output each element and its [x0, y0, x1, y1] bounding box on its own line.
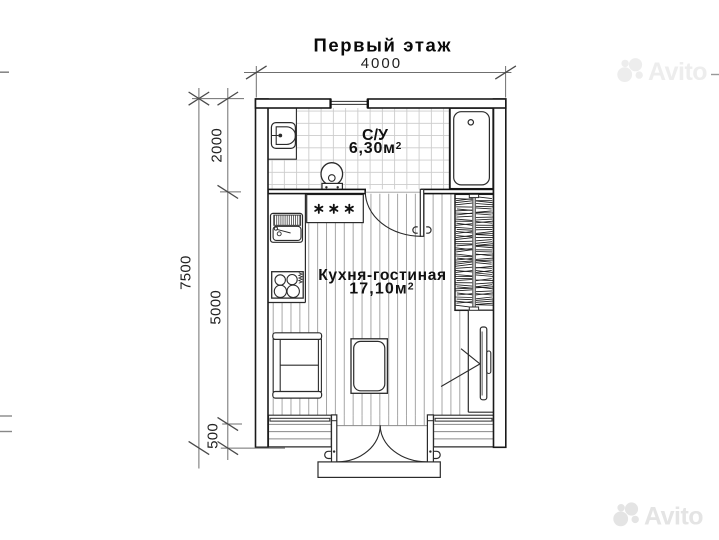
svg-text:Avito: Avito [648, 58, 707, 86]
svg-text:17,10м2: 17,10м2 [349, 280, 414, 297]
svg-text:7500: 7500 [178, 255, 195, 290]
svg-text:6,30м2: 6,30м2 [349, 140, 402, 157]
svg-text:500: 500 [205, 423, 222, 449]
svg-text:2000: 2000 [209, 128, 226, 163]
svg-text:4000: 4000 [361, 55, 402, 72]
svg-text:5000: 5000 [207, 290, 224, 325]
svg-text:Avito: Avito [644, 503, 703, 531]
svg-text:Первый этаж: Первый этаж [313, 34, 452, 55]
